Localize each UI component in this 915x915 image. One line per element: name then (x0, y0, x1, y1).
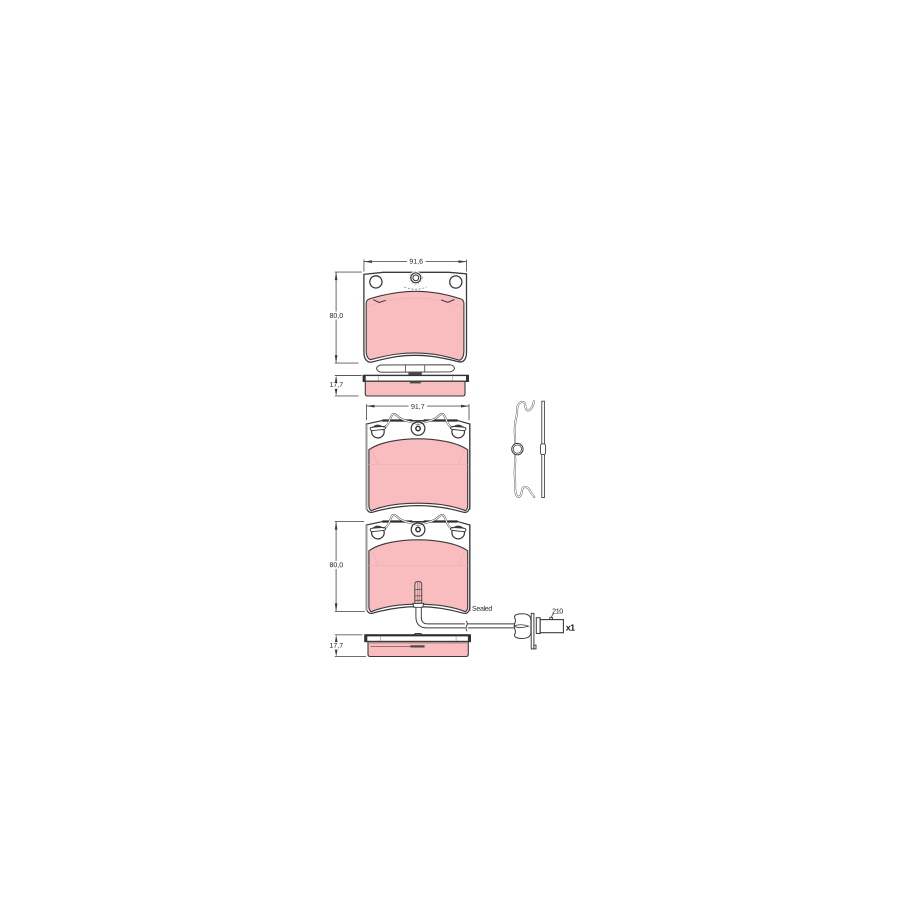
svg-text:91,6: 91,6 (409, 259, 423, 266)
svg-text:80,0: 80,0 (329, 562, 343, 569)
svg-text:Sealed: Sealed (472, 606, 492, 613)
svg-text:x1: x1 (566, 623, 575, 633)
svg-text:17,7: 17,7 (329, 382, 343, 389)
svg-text:17,7: 17,7 (329, 643, 343, 650)
svg-text:210: 210 (552, 607, 563, 615)
svg-text:91,7: 91,7 (411, 404, 425, 411)
svg-text:80,0: 80,0 (329, 313, 343, 320)
